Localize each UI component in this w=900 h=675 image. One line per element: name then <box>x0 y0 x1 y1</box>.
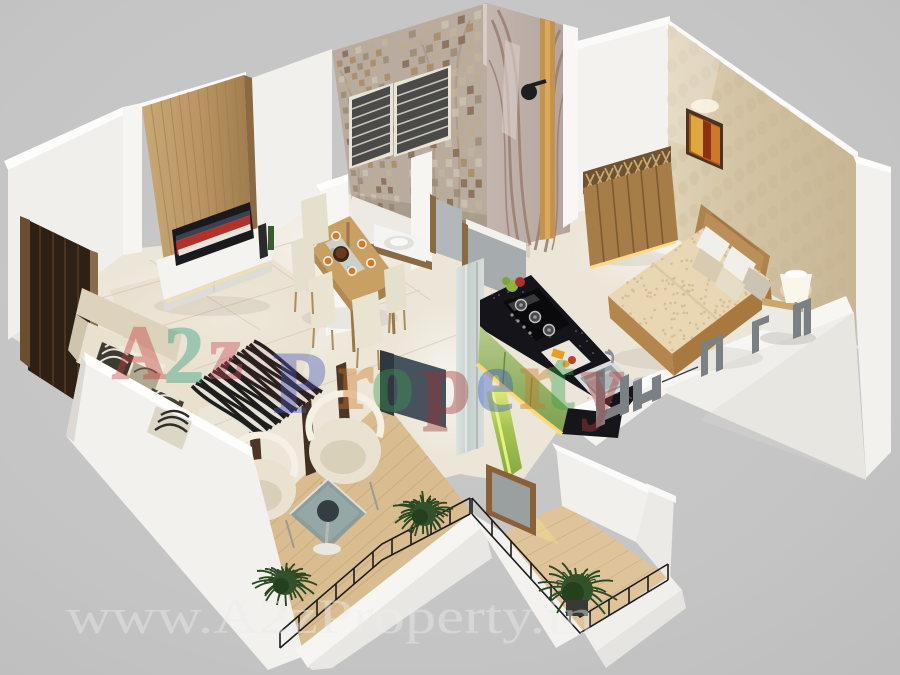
svg-text:2: 2 <box>164 312 204 400</box>
svg-text:e: e <box>476 333 514 429</box>
svg-text:P: P <box>273 335 327 432</box>
svg-text:z: z <box>209 311 243 395</box>
svg-text:t: t <box>546 334 574 427</box>
svg-text:www.A2zProperty.in: www.A2zProperty.in <box>66 588 594 644</box>
svg-text:o: o <box>371 333 414 429</box>
svg-text:r: r <box>337 334 374 427</box>
svg-text:A: A <box>112 311 167 395</box>
svg-text:p: p <box>423 335 471 431</box>
svg-text:y: y <box>581 335 624 431</box>
